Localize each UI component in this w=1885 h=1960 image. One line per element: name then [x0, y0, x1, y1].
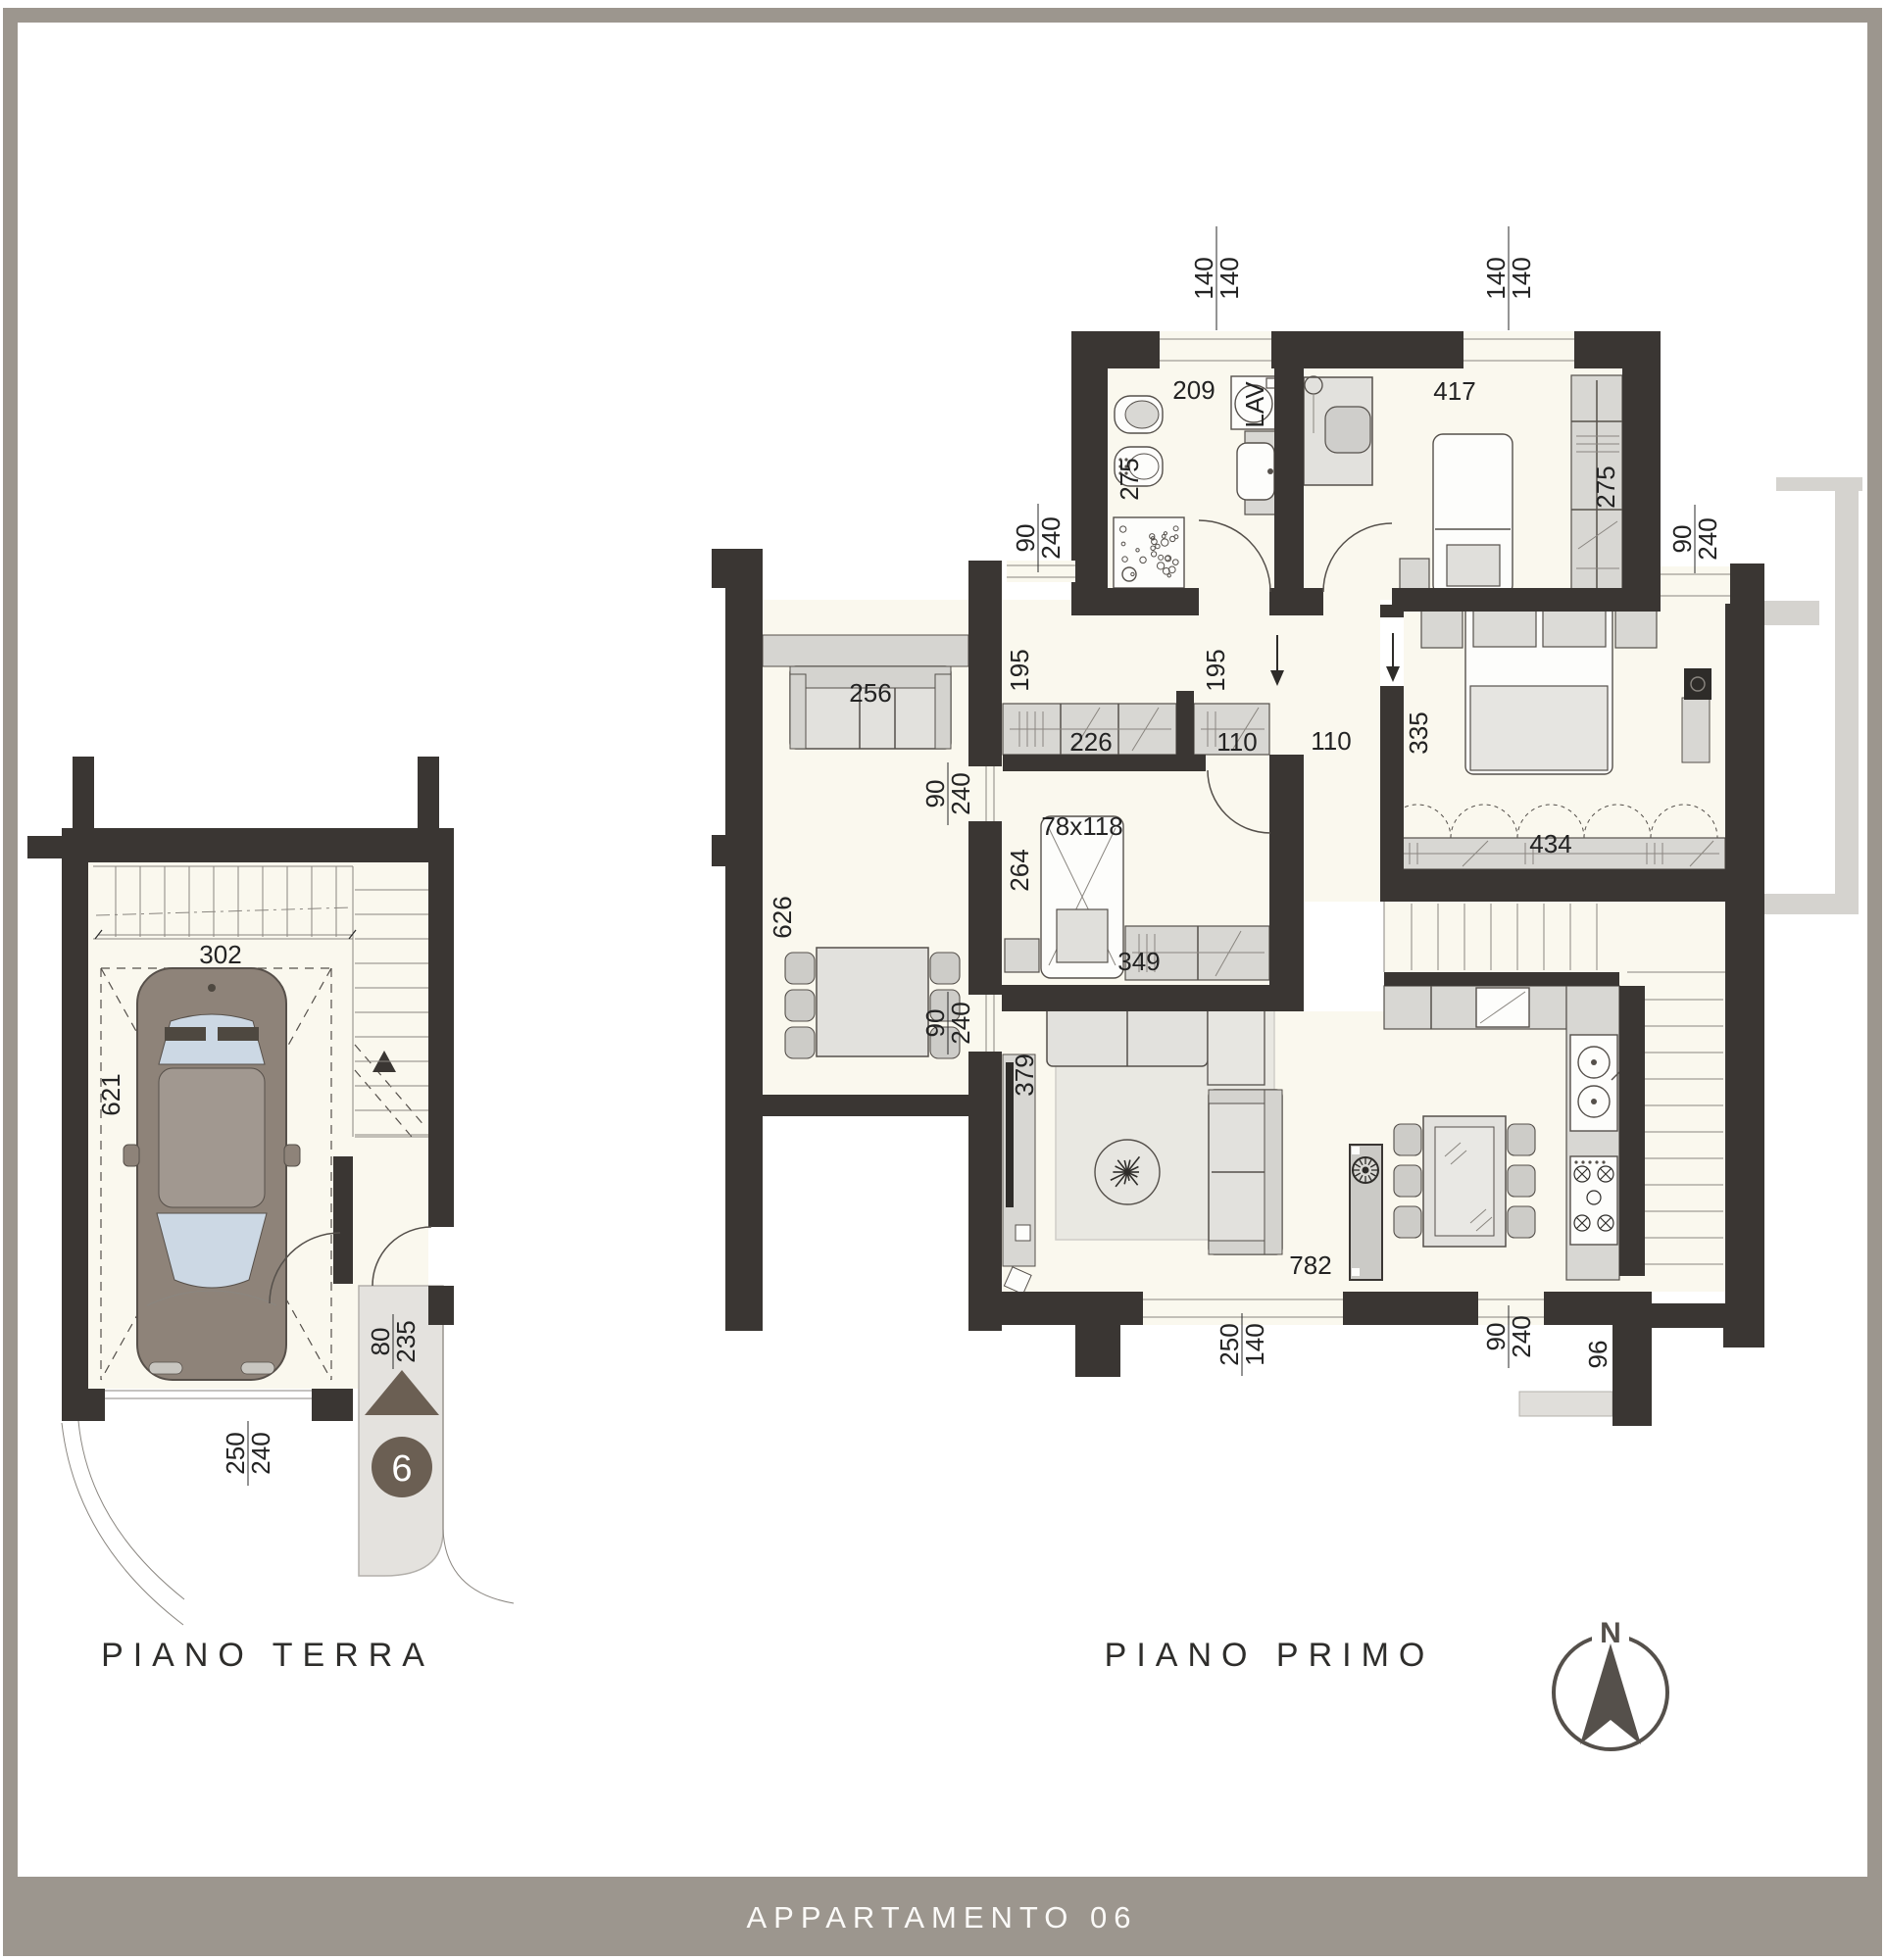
- pillow: [1447, 545, 1500, 586]
- desk-chair: [1325, 407, 1370, 453]
- dim-label: 140: [1215, 257, 1244, 299]
- car-headlight: [149, 1362, 182, 1374]
- car-windshield: [157, 1213, 267, 1288]
- north-arrow-icon: [1580, 1643, 1641, 1744]
- car-vent: [165, 1027, 206, 1041]
- dim-label: 240: [946, 772, 975, 814]
- kitchen-island: [1350, 1145, 1382, 1280]
- dim-label: 434: [1529, 829, 1571, 858]
- nightstand: [1400, 559, 1429, 592]
- car-vent: [218, 1027, 259, 1041]
- terrace-slab: [1519, 1392, 1612, 1416]
- dim-label: 240: [246, 1432, 275, 1474]
- pillow: [1057, 909, 1108, 962]
- compass: N: [1554, 1617, 1667, 1749]
- dim-label: 78x118: [1041, 811, 1122, 841]
- dim-label: 235: [391, 1320, 421, 1362]
- compass-north-label: N: [1600, 1617, 1621, 1649]
- title-bar: APPARTAMENTO 06: [3, 1877, 1882, 1956]
- tv-shelf: [1682, 698, 1710, 762]
- dim-label: 226: [1069, 727, 1112, 757]
- adjacent-unit-lines: [1764, 477, 1862, 914]
- entry-arrow-icon: [1386, 633, 1400, 682]
- car-mirror: [284, 1145, 300, 1166]
- car-headlight: [241, 1362, 274, 1374]
- plan-drawing: 6 30262125024080235 PIANO TERRA: [0, 0, 1885, 1960]
- dining-table: [817, 948, 928, 1056]
- window: [1007, 561, 1075, 582]
- car: [124, 968, 300, 1380]
- dim-label: 621: [96, 1073, 125, 1115]
- dim-label: 275: [1591, 465, 1620, 508]
- floor-plan-sheet: 6 30262125024080235 PIANO TERRA: [0, 0, 1885, 1960]
- dim-label: 240: [1036, 516, 1066, 559]
- dim-label: 782: [1289, 1250, 1331, 1280]
- pillow: [1473, 610, 1536, 647]
- dim-label: 302: [199, 940, 241, 969]
- apartment-title: APPARTAMENTO 06: [746, 1900, 1137, 1935]
- dim-label: 140: [1507, 257, 1536, 299]
- dim-label: 379: [1010, 1053, 1039, 1096]
- pillow: [1543, 610, 1606, 647]
- dim-label: 140: [1240, 1323, 1269, 1365]
- window: [1160, 331, 1271, 368]
- unit-number: 6: [391, 1448, 412, 1490]
- dim-label: 349: [1117, 947, 1160, 976]
- dim-label: 335: [1404, 711, 1433, 754]
- dim-label: 256: [849, 678, 891, 708]
- dim-label: 264: [1005, 849, 1034, 891]
- ground-plan-title: PIANO TERRA: [101, 1637, 434, 1674]
- dim-label: 626: [768, 896, 797, 938]
- dim-label: 195: [1201, 649, 1230, 691]
- beam: [763, 635, 968, 666]
- glass-top: [1435, 1127, 1494, 1236]
- car-roof: [159, 1068, 265, 1207]
- blanket: [1470, 686, 1608, 770]
- dim-label: 110: [1311, 726, 1351, 756]
- kitchen-counter-top: [1384, 986, 1566, 1029]
- chaise: [1208, 1004, 1265, 1085]
- window: [1143, 1292, 1343, 1325]
- sofa-right: [1209, 1090, 1282, 1254]
- dim-label: 96: [1583, 1341, 1612, 1369]
- ground-floor-plan: 6 30262125024080235 PIANO TERRA: [27, 757, 514, 1674]
- dim-label: 240: [1507, 1315, 1536, 1357]
- car-mirror: [124, 1145, 139, 1166]
- first-plan-title: PIANO PRIMO: [1105, 1637, 1435, 1674]
- dim-label: LAV: [1240, 381, 1269, 428]
- dim-label: 240: [946, 1002, 975, 1044]
- dim-label: 240: [1693, 517, 1722, 560]
- tv: [1684, 668, 1711, 700]
- window: [1463, 331, 1574, 368]
- nightstand: [1005, 939, 1039, 972]
- dim-label: 275: [1115, 458, 1144, 500]
- dim-label: 195: [1005, 649, 1034, 691]
- dim-label: 110: [1216, 727, 1257, 757]
- dim-label: 209: [1172, 375, 1215, 405]
- first-floor-plan: 1401401401402094172752759024090240195195…: [712, 226, 1862, 1674]
- dim-label: 417: [1433, 376, 1475, 406]
